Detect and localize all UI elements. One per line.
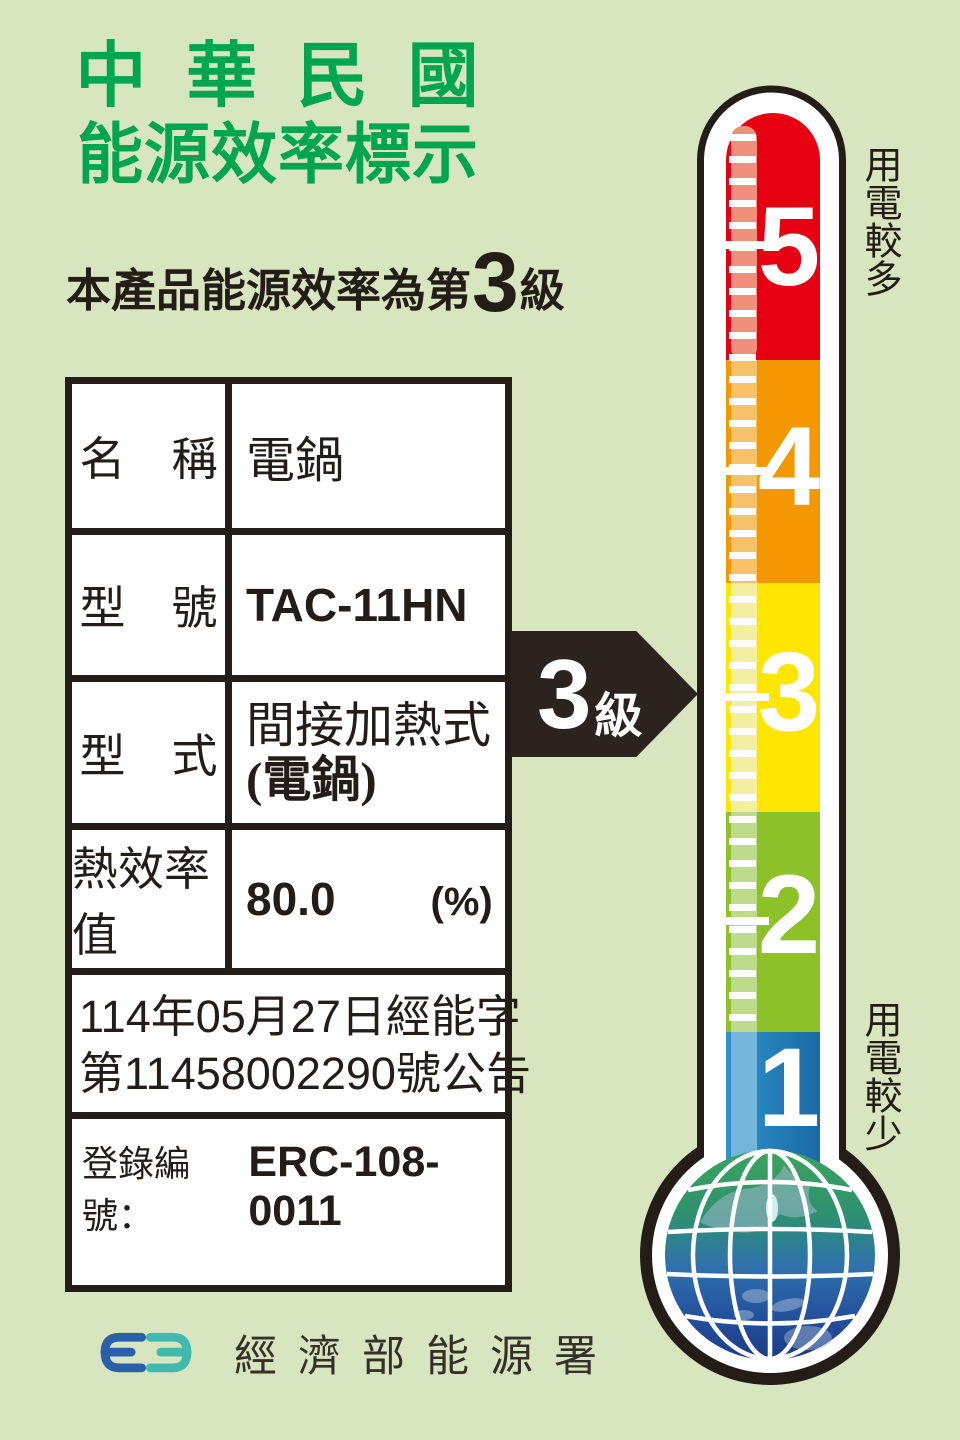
grade-statement-number: 3 [472, 248, 519, 317]
table-row-model: 型 號 TAC-11HN [72, 535, 505, 682]
registration-number: ERC-108-0011 [248, 1138, 505, 1236]
announcement-line1: 114年05月27日經能字 [79, 988, 531, 1045]
tick-marks [729, 134, 756, 1030]
globe [665, 1150, 875, 1360]
segment-1-stripe [731, 1032, 757, 1157]
registration-label: 登錄編號： [82, 1135, 244, 1239]
level-number-4: 4 [758, 404, 820, 529]
grade-arrow-number: 3 [537, 645, 592, 743]
agency-name: 經濟部能源署 [234, 1322, 618, 1384]
type-value-line2: (電鍋) [246, 753, 505, 807]
row-label-efficiency: 熱效率值 [72, 830, 232, 968]
table-row-announcement: 114年05月27日經能字 第11458002290號公告 [72, 975, 505, 1119]
row-label-name: 名 稱 [72, 384, 232, 528]
model-number-value: TAC-11HN [246, 578, 505, 632]
row-label-model: 型 號 [72, 535, 232, 675]
announcement-line2: 第11458002290號公告 [79, 1045, 531, 1102]
table-row-efficiency: 熱效率值 80.0 (%) [72, 830, 505, 975]
uses-more-electricity-label: 用電較多 [860, 145, 898, 297]
label-title: 中 華 民 國 能源效率標示 [68, 40, 488, 188]
grade-statement-prefix: 本產品能源效率為第 [66, 268, 471, 317]
table-row-name: 名 稱 電鍋 [72, 384, 505, 535]
level-number-2: 2 [758, 852, 820, 977]
footer: 經濟部能源署 [98, 1322, 618, 1384]
level-number-5: 5 [758, 184, 820, 309]
efficiency-value: 80.0 [246, 872, 336, 926]
table-row-type: 型 式 間接加熱式 (電鍋) [72, 682, 505, 830]
table-row-registration: 登錄編號： ERC-108-0011 [72, 1119, 505, 1285]
energy-label: 中 華 民 國 能源效率標示 本產品能源效率為第 3 級 名 稱 電鍋 型 號 … [0, 0, 960, 1440]
level-number-3: 3 [758, 629, 820, 754]
grade-statement-suffix: 級 [520, 268, 565, 317]
row-label-type: 型 式 [72, 682, 232, 823]
title-line2: 能源效率標示 [68, 120, 488, 189]
spec-table: 名 稱 電鍋 型 號 TAC-11HN 型 式 間接加熱式 (電鍋) 熱效率值 … [65, 377, 512, 1292]
grade-statement: 本產品能源效率為第 3 級 [66, 248, 565, 317]
type-value-line1: 間接加熱式 [246, 699, 505, 753]
efficiency-unit: (%) [431, 880, 493, 925]
product-name-value: 電鍋 [246, 421, 505, 492]
level-number-1: 1 [758, 1025, 820, 1150]
title-line1: 中 華 民 國 [68, 40, 488, 114]
energy-administration-logo-icon [98, 1330, 194, 1376]
uses-less-electricity-label: 用電較少 [860, 1000, 898, 1152]
